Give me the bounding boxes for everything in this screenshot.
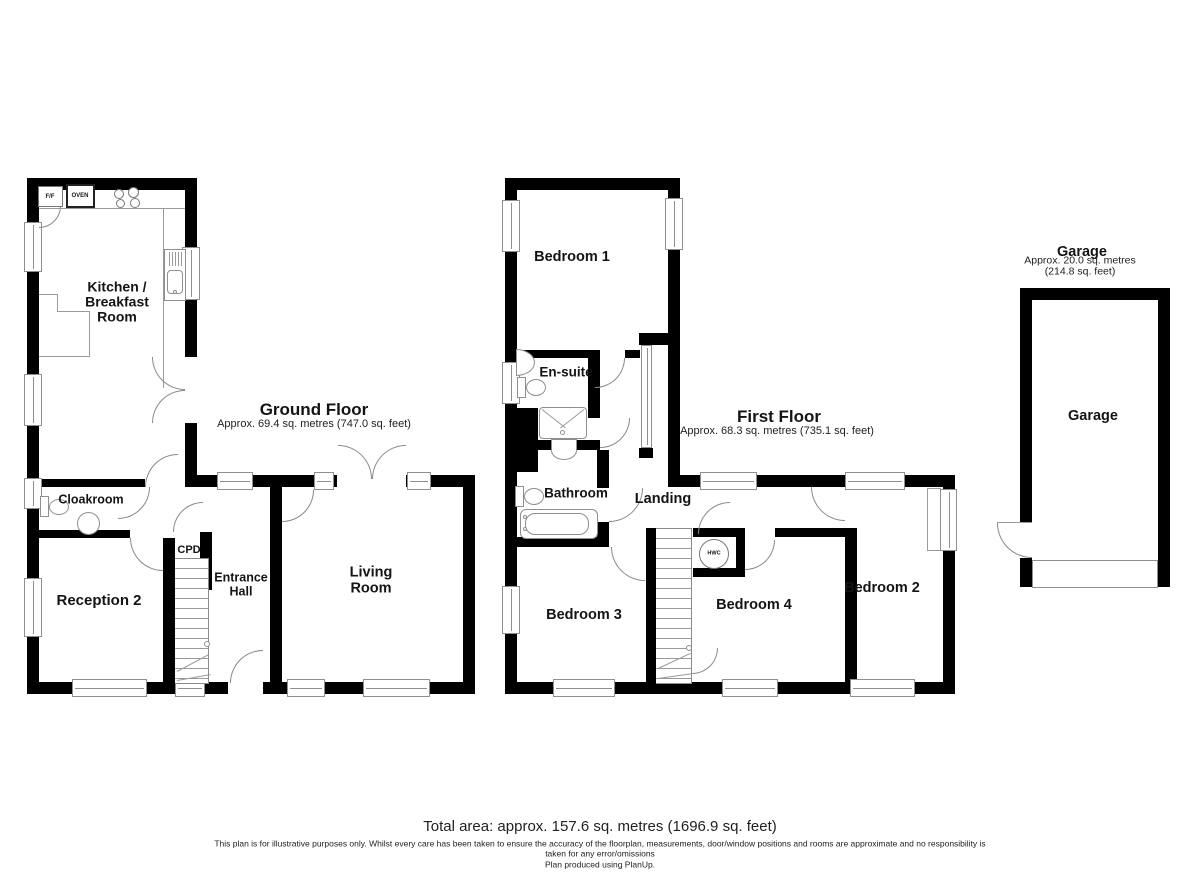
front-door-arc [230, 650, 263, 683]
room-label-living: Living Room [350, 565, 393, 596]
garden-door-arc-top [152, 357, 185, 390]
disclaimer-line3: Plan produced using PlanUp. [545, 860, 655, 869]
reception-door-arc [130, 538, 163, 571]
room-label-kitchen: Kitchen / Breakfast Room [85, 279, 149, 324]
gf-wall-reception-hall [163, 538, 175, 694]
bath-tap-icon [523, 527, 527, 531]
garden-door-arc-bottom [152, 390, 185, 423]
ff-wall-ensuite-top2 [625, 350, 640, 358]
kitchen-unit-edge [39, 294, 58, 295]
kitchen-door-arc [145, 454, 178, 487]
window [217, 472, 253, 490]
bedroom4-door-arc [745, 540, 775, 570]
window [407, 472, 431, 490]
bed2-bay-recess-line [927, 550, 941, 551]
basin-icon [551, 439, 577, 460]
toilet-bowl-icon [524, 488, 544, 505]
garage-wall-left-upper [1020, 288, 1032, 522]
french-door-arc-left [338, 445, 372, 479]
drainer-icon [167, 252, 183, 266]
garage-wall-top [1020, 288, 1170, 300]
hob-burner-icon [128, 187, 139, 198]
window [850, 679, 915, 697]
gf-stair-newel [204, 641, 210, 647]
gf-title: Ground Floor [260, 401, 369, 419]
hob-burner-icon [114, 189, 124, 199]
toilet-bowl-icon [526, 379, 546, 396]
ff-wall-hwc-bottom [693, 568, 745, 577]
window [700, 472, 757, 490]
gf-opening-garden-doors [185, 357, 197, 423]
window [845, 472, 905, 490]
garage-side-door-leaf [997, 522, 1032, 523]
basin-icon [77, 512, 100, 535]
sink-tap-icon [173, 290, 177, 294]
garage-area-label: Approx. 20.0 sq. metres (214.8 sq. feet) [1020, 256, 1140, 279]
ff-stair-newel [686, 645, 692, 651]
gf-wall-cloakroom-top [39, 479, 145, 487]
ff-wall-stairwell-cap [639, 333, 680, 345]
shower-drain-icon [560, 430, 565, 435]
gf-wall-hall-living [270, 487, 282, 694]
french-door-arc-right [372, 445, 406, 479]
room-label-bathroom: Bathroom [544, 487, 608, 502]
kitchen-unit-edge [39, 356, 90, 357]
ff-wall-top [505, 178, 680, 190]
landing-door-arc [698, 502, 730, 534]
garage-up-and-over-door [1032, 560, 1158, 588]
window [24, 374, 42, 426]
window [502, 586, 520, 634]
window [553, 679, 615, 697]
ff-wall-stair-left [646, 528, 656, 683]
window [665, 198, 683, 250]
gf-wall-kitchen-right [185, 178, 197, 487]
toilet-cistern-icon [40, 496, 49, 517]
ff-wall-stairwell-right [668, 333, 680, 475]
kitchen-unit-edge [57, 294, 58, 312]
oven-label: OVEN [71, 193, 88, 199]
bath-inner-icon [525, 513, 589, 535]
hwc-label: HWC [707, 551, 720, 557]
gf-staircase [175, 558, 209, 684]
stair-bottom-door-arc [692, 648, 718, 674]
window [314, 472, 334, 490]
hob-burner-icon [116, 199, 125, 208]
hob-burner-icon [130, 198, 140, 208]
bath-tap-icon [523, 515, 527, 519]
window [24, 222, 42, 272]
cpd-door-arc [173, 502, 203, 532]
bed2-bay-window [940, 489, 957, 551]
room-label-bedroom4: Bedroom 4 [716, 598, 792, 614]
room-label-cloakroom: Cloakroom [58, 493, 123, 507]
room-label-bedroom2: Bedroom 2 [844, 581, 920, 597]
disclaimer-line1: This plan is for illustrative purposes o… [214, 839, 985, 848]
room-label-bedroom3: Bedroom 3 [546, 608, 622, 624]
ff-wall-bed4-top [775, 528, 845, 537]
ff-wall-chimney [512, 408, 538, 472]
room-label-garage: Garage [1068, 409, 1118, 425]
window [72, 679, 147, 697]
ff-wall-bed2-left [845, 528, 857, 682]
room-label-landing: Landing [635, 492, 691, 508]
room-label-ensuite: En-suite [539, 366, 592, 381]
garage-side-door-arc [997, 523, 1032, 558]
bed2-bay-recess-line [927, 488, 941, 489]
gf-area-label: Approx. 69.4 sq. metres (747.0 sq. feet) [217, 419, 411, 431]
garage-wall-right [1158, 288, 1170, 587]
window [502, 200, 520, 252]
window [24, 578, 42, 637]
toilet-cistern-icon [515, 486, 524, 507]
gf-opening-front-door [228, 682, 263, 694]
ensuite-door-arc [600, 418, 630, 448]
kitchen-cupboard-door-arc [39, 206, 61, 228]
bedroom2-door-arc [811, 487, 845, 521]
room-label-cpd: CPD [177, 545, 200, 557]
gf-wall-right [463, 475, 475, 694]
fridge-freezer-label: F/F [46, 194, 55, 200]
living-room-door-arc [282, 490, 314, 522]
ff-area-label: Approx. 68.3 sq. metres (735.1 sq. feet) [680, 426, 874, 438]
bedroom3-door-arc [611, 547, 645, 581]
window [722, 679, 778, 697]
stairwell-window [641, 345, 652, 448]
floorplan-page: F/F OVEN Kitchen / Breakfast Room Ground… [0, 0, 1200, 873]
room-label-entrance-hall: Entrance Hall [214, 572, 268, 599]
window [363, 679, 430, 697]
toilet-cistern-icon [517, 377, 526, 398]
bedroom1-door-arc [595, 358, 625, 388]
window [287, 679, 325, 697]
ff-wall-stairwell-stub [639, 448, 653, 458]
room-label-reception2: Reception 2 [56, 593, 141, 609]
disclaimer-line2: taken for any error/omissions [545, 849, 655, 858]
bed2-bay-recess-line [927, 489, 928, 551]
room-label-bedroom1: Bedroom 1 [534, 250, 610, 266]
total-area-text: Total area: approx. 157.6 sq. metres (16… [423, 819, 777, 835]
ff-title: First Floor [737, 408, 821, 426]
ff-wall-bathroom-right [597, 450, 609, 488]
